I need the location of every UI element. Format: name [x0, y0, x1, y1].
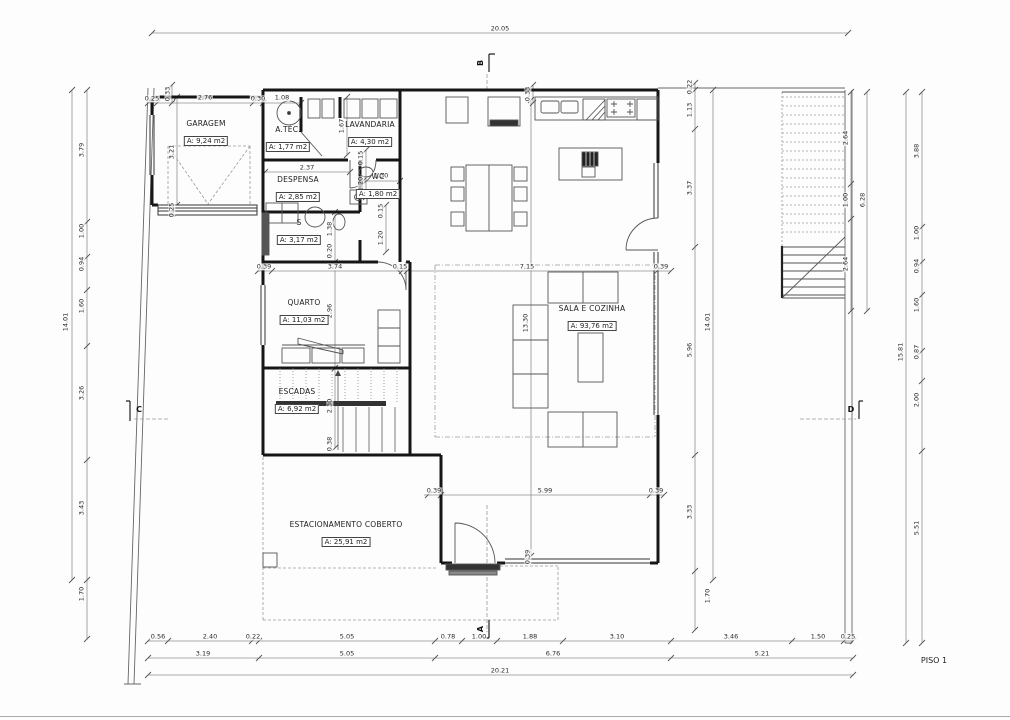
room-label: WCA: 1,80 m2 — [356, 172, 400, 200]
section-marker-c: C — [136, 406, 142, 414]
dimension-label: 1.13 — [686, 102, 693, 118]
dimension-label: 1.20 — [377, 230, 384, 246]
dimension-label: 13.30 — [522, 313, 529, 334]
room-name: A.TÉC. — [266, 125, 310, 134]
dimension-label: 0.33 — [524, 86, 531, 102]
dimension-label: 0.39 — [256, 263, 272, 270]
dimension-label: 6.28 — [859, 192, 866, 208]
room-name: WC — [356, 172, 400, 181]
label-overlay: PISO 1 20.050.252.760.301.080.330.330.22… — [0, 0, 1010, 720]
room-name: LAVANDARIA — [345, 120, 395, 129]
dimension-label: 2.40 — [202, 633, 218, 640]
dimension-label: 3.46 — [723, 633, 739, 640]
dimension-label: 1.00 — [913, 225, 920, 241]
dimension-label: 0.15 — [392, 263, 408, 270]
room-name: QUARTO — [280, 298, 329, 307]
dimension-label: 14.01 — [62, 312, 69, 333]
room-name: S — [277, 218, 321, 227]
room-name: SALA E COZINHA — [559, 304, 626, 313]
dimension-label: 2.76 — [197, 94, 213, 101]
dimension-label: 1.38 — [326, 221, 333, 237]
dimension-label: 1.08 — [274, 94, 290, 101]
dimension-label: 0.25 — [168, 202, 175, 218]
room-name: ESCADAS — [275, 387, 319, 396]
dimension-label: 7.15 — [519, 263, 535, 270]
room-label: A.TÉC.A: 1,77 m2 — [266, 125, 310, 153]
dimension-label: 5.99 — [537, 487, 553, 494]
dimension-label: 0.94 — [78, 256, 85, 272]
dimension-label: 1.00 — [842, 192, 849, 208]
dimension-label: 5.51 — [913, 520, 920, 536]
dimension-label: 0.25 — [840, 633, 856, 640]
dimension-label: 1.60 — [78, 298, 85, 314]
dimension-label: 2.64 — [842, 130, 849, 146]
floor-plan-sheet: PISO 1 20.050.252.760.301.080.330.330.22… — [0, 0, 1010, 720]
dimension-label: 3.21 — [168, 144, 175, 160]
dimension-label: 1.50 — [810, 633, 826, 640]
dimension-label: 3.43 — [78, 500, 85, 516]
dimension-label: 0.39 — [648, 487, 664, 494]
room-area: A: 25,91 m2 — [322, 537, 371, 547]
dimension-label: 1.60 — [913, 297, 920, 313]
sheet-title: PISO 1 — [921, 657, 947, 665]
dimension-label: 5.05 — [339, 650, 355, 657]
dimension-label: 3.10 — [609, 633, 625, 640]
room-area: A: 93,76 m2 — [568, 321, 617, 331]
room-label: ESTACIONAMENTO COBERTOA: 25,91 m2 — [290, 520, 403, 548]
dimension-label: 3.19 — [195, 650, 211, 657]
section-marker-b: B — [477, 60, 485, 66]
dimension-label: 5.21 — [754, 650, 770, 657]
room-label: GARAGEMA: 9,24 m2 — [184, 119, 228, 147]
room-area: A: 4,30 m2 — [348, 137, 392, 147]
dimension-label: 0.38 — [326, 436, 333, 452]
dimension-label: 3.79 — [78, 142, 85, 158]
dimension-label: 0.25 — [144, 95, 160, 102]
dimension-label: 20.05 — [490, 25, 511, 32]
dimension-label: 5.96 — [686, 342, 693, 358]
dimension-label: 3.74 — [327, 263, 343, 270]
room-area: A: 2,85 m2 — [276, 192, 320, 202]
dimension-label: 0.20 — [326, 243, 333, 259]
dimension-label: 3.37 — [686, 180, 693, 196]
dimension-label: 1.70 — [78, 586, 85, 602]
section-marker-a: A — [477, 626, 485, 632]
dimension-label: 1.88 — [522, 633, 538, 640]
room-name: DESPENSA — [276, 175, 320, 184]
dimension-label: 0.39 — [653, 263, 669, 270]
room-label: DESPENSAA: 2,85 m2 — [276, 175, 320, 203]
dimension-label: 0.15 — [377, 203, 384, 219]
dimension-label: 0.39 — [524, 549, 531, 565]
dimension-label: 3.88 — [913, 143, 920, 159]
dimension-label: 0.56 — [150, 633, 166, 640]
dimension-label: 2.30 — [326, 398, 333, 414]
dimension-label: 0.15 — [357, 150, 364, 166]
dimension-label: 5.05 — [339, 633, 355, 640]
room-area: A: 3,17 m2 — [277, 235, 321, 245]
dimension-label: 0.94 — [913, 258, 920, 274]
dimension-label: 15.81 — [897, 342, 904, 363]
dimension-label: 1.00 — [78, 223, 85, 239]
dimension-label: 0.30 — [250, 95, 266, 102]
room-area: A: 9,24 m2 — [184, 136, 228, 146]
dimension-label: 0.87 — [913, 344, 920, 360]
dimension-label: 20.21 — [490, 667, 511, 674]
dimension-label: 0.78 — [440, 633, 456, 640]
dimension-label: 0.39 — [426, 487, 442, 494]
dimension-label: 3.33 — [686, 504, 693, 520]
dimension-label: 14.01 — [704, 312, 711, 333]
room-name: ESTACIONAMENTO COBERTO — [290, 520, 403, 529]
section-marker-d: D — [848, 406, 855, 414]
dimension-label: 2.37 — [299, 164, 315, 171]
room-area: A: 1,77 m2 — [266, 142, 310, 152]
dimension-label: 0.22 — [686, 79, 693, 95]
room-label: SA: 3,17 m2 — [277, 218, 321, 246]
room-area: A: 11,03 m2 — [280, 315, 329, 325]
room-area: A: 6,92 m2 — [275, 404, 319, 414]
room-label: QUARTOA: 11,03 m2 — [280, 298, 329, 326]
dimension-label: 1.70 — [704, 588, 711, 604]
room-label: ESCADASA: 6,92 m2 — [275, 387, 319, 415]
dimension-label: 2.00 — [913, 392, 920, 408]
room-label: LAVANDARIAA: 4,30 m2 — [345, 120, 395, 148]
dimension-label: 2.64 — [842, 256, 849, 272]
room-name: GARAGEM — [184, 119, 228, 128]
dimension-label: 0.22 — [245, 633, 261, 640]
room-area: A: 1,80 m2 — [356, 189, 400, 199]
room-label: SALA E COZINHAA: 93,76 m2 — [559, 304, 626, 332]
dimension-label: 0.33 — [164, 86, 171, 102]
dimension-label: 3.26 — [78, 385, 85, 401]
dimension-label: 1.00 — [471, 633, 487, 640]
dimension-label: 6.76 — [545, 650, 561, 657]
